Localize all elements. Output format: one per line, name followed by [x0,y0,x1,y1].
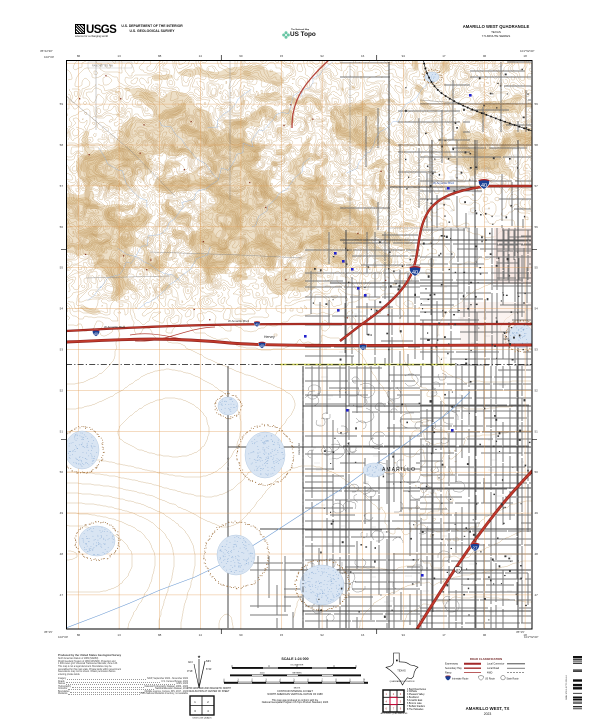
svg-text:W Amarillo Blvd: W Amarillo Blvd [104,325,125,329]
svg-text:Ramp: Ramp [445,671,452,674]
svg-text:Hervey: Hervey [264,335,275,339]
svg-text:94: 94 [402,633,406,637]
svg-text:86: 86 [77,54,81,58]
svg-text:56: 56 [60,225,64,229]
svg-text:16: 16 [361,633,365,637]
svg-text:GN: GN [188,660,193,664]
svg-text:88: 88 [158,633,162,637]
svg-text:HAPPY 28 MI: HAPPY 28 MI [296,636,311,639]
svg-text:1000: 1000 [260,672,266,674]
svg-text:14: 14 [199,633,203,637]
svg-text:90: 90 [239,54,243,58]
svg-text:W Amarillo Blvd: W Amarillo Blvd [228,319,249,323]
svg-text:53: 53 [60,348,64,352]
svg-text:40: 40 [481,183,487,189]
svg-text:51: 51 [535,429,539,433]
svg-text:6: 6 [386,707,388,711]
svg-text:7: 7 [321,679,323,681]
svg-text:55: 55 [60,266,64,270]
svg-text:49: 49 [535,511,539,515]
svg-text:4WD: 4WD [487,671,493,674]
svg-text:40: 40 [255,323,259,327]
svg-text:METERS: METERS [292,672,302,674]
svg-text:57: 57 [535,184,539,188]
svg-text:Local Road: Local Road [487,667,500,670]
svg-text:57: 57 [60,184,64,188]
svg-text:3: 3 [400,692,402,696]
svg-text:40: 40 [361,346,365,350]
svg-text:W Amarillo Blvd: W Amarillo Blvd [433,181,454,185]
svg-text:Western St: Western St [226,457,230,470]
svg-text:State Route: State Route [507,677,520,680]
svg-text:96: 96 [483,54,487,58]
svg-text:MILES: MILES [294,687,301,689]
svg-text:7: 7 [393,707,395,711]
svg-text:90: 90 [239,633,243,637]
svg-text:AMARILLO: AMARILLO [382,467,416,473]
svg-text:★: ★ [197,654,201,659]
svg-text:13: 13 [117,633,121,637]
svg-text:1: 1 [386,692,388,696]
svg-text:51: 51 [60,429,64,433]
svg-text:94: 94 [402,54,406,58]
svg-text:102°00': 102°00' [58,635,69,639]
svg-text:35°15': 35°15' [44,630,53,634]
svg-text:47: 47 [60,593,64,597]
svg-text:4: 4 [207,709,209,713]
svg-text:TEXAS: TEXAS [397,669,406,673]
svg-text:2: 2 [393,692,395,696]
svg-text:92: 92 [320,54,324,58]
svg-text:101°52'30": 101°52'30" [524,635,539,639]
svg-text:8: 8 [400,707,402,711]
svg-text:40: 40 [260,344,264,348]
svg-text:55: 55 [535,266,539,270]
svg-text:8: 8 [335,679,337,681]
svg-text:54: 54 [535,307,539,311]
svg-text:101°52'30": 101°52'30" [520,49,535,53]
svg-text:9: 9 [349,679,351,681]
svg-text:RANCHETTES NW: RANCHETTES NW [92,65,114,68]
svg-text:5: 5 [400,699,402,703]
svg-text:35°22'30": 35°22'30" [40,49,53,53]
svg-text:50: 50 [60,470,64,474]
svg-text:47: 47 [535,593,539,597]
svg-text:92: 92 [320,633,324,637]
svg-text:54: 54 [60,307,64,311]
svg-text:US Route: US Route [485,677,496,680]
svg-text:27: 27 [472,546,478,551]
svg-text:Local Connector: Local Connector [487,663,505,666]
svg-text:MN: MN [206,659,211,663]
svg-text:50: 50 [535,470,539,474]
svg-text:14: 14 [199,54,203,58]
svg-text:48: 48 [60,552,64,556]
svg-text:96: 96 [483,633,487,637]
svg-text:56: 56 [535,225,539,229]
svg-text:15: 15 [280,633,284,637]
svg-text:2: 2 [251,679,253,681]
svg-text:Expressway: Expressway [445,663,459,666]
svg-text:86: 86 [77,633,81,637]
svg-text:5: 5 [293,679,295,681]
svg-text:59: 59 [60,102,64,106]
svg-text:58: 58 [60,143,64,147]
svg-text:CANYON 16 MI: CANYON 16 MI [180,634,197,637]
svg-text:1: 1 [237,679,239,681]
svg-text:Secondary Hwy: Secondary Hwy [445,667,463,670]
svg-text:48: 48 [535,552,539,556]
svg-text:0: 0 [223,679,225,681]
svg-text:53: 53 [535,348,539,352]
svg-text:Helium Rd: Helium Rd [297,442,301,455]
svg-text:2: 2 [207,700,209,704]
svg-text:18: 18 [523,54,527,58]
svg-text:52: 52 [535,388,539,392]
svg-text:1: 1 [194,700,196,704]
svg-text:102°00': 102°00' [44,55,55,59]
svg-text:USGS 24K QUADS: USGS 24K QUADS [192,717,212,719]
svg-text:3: 3 [265,679,267,681]
svg-text:4: 4 [279,679,281,681]
svg-text:59: 59 [535,102,539,106]
svg-text:49: 49 [60,511,64,515]
svg-text:16: 16 [361,54,365,58]
svg-text:6°41': 6°41' [206,667,212,671]
svg-text:40: 40 [94,332,98,336]
svg-text:88: 88 [158,54,162,58]
svg-text:3: 3 [194,709,196,713]
svg-text:Interstate Route: Interstate Route [452,677,469,680]
svg-text:15: 15 [280,54,284,58]
svg-text:17: 17 [442,633,446,637]
svg-text:17: 17 [442,54,446,58]
svg-text:ROAD CLASSIFICATION: ROAD CLASSIFICATION [470,657,502,661]
svg-text:13: 13 [117,54,121,58]
svg-text:40: 40 [412,270,418,276]
svg-text:52: 52 [60,388,64,392]
svg-text:58: 58 [535,143,539,147]
svg-text:35°15': 35°15' [516,630,525,634]
svg-text:87: 87 [456,569,460,573]
svg-text:0°16': 0°16' [187,669,193,673]
svg-text:10: 10 [363,679,366,681]
svg-text:4: 4 [386,699,388,703]
svg-text:6: 6 [307,679,309,681]
